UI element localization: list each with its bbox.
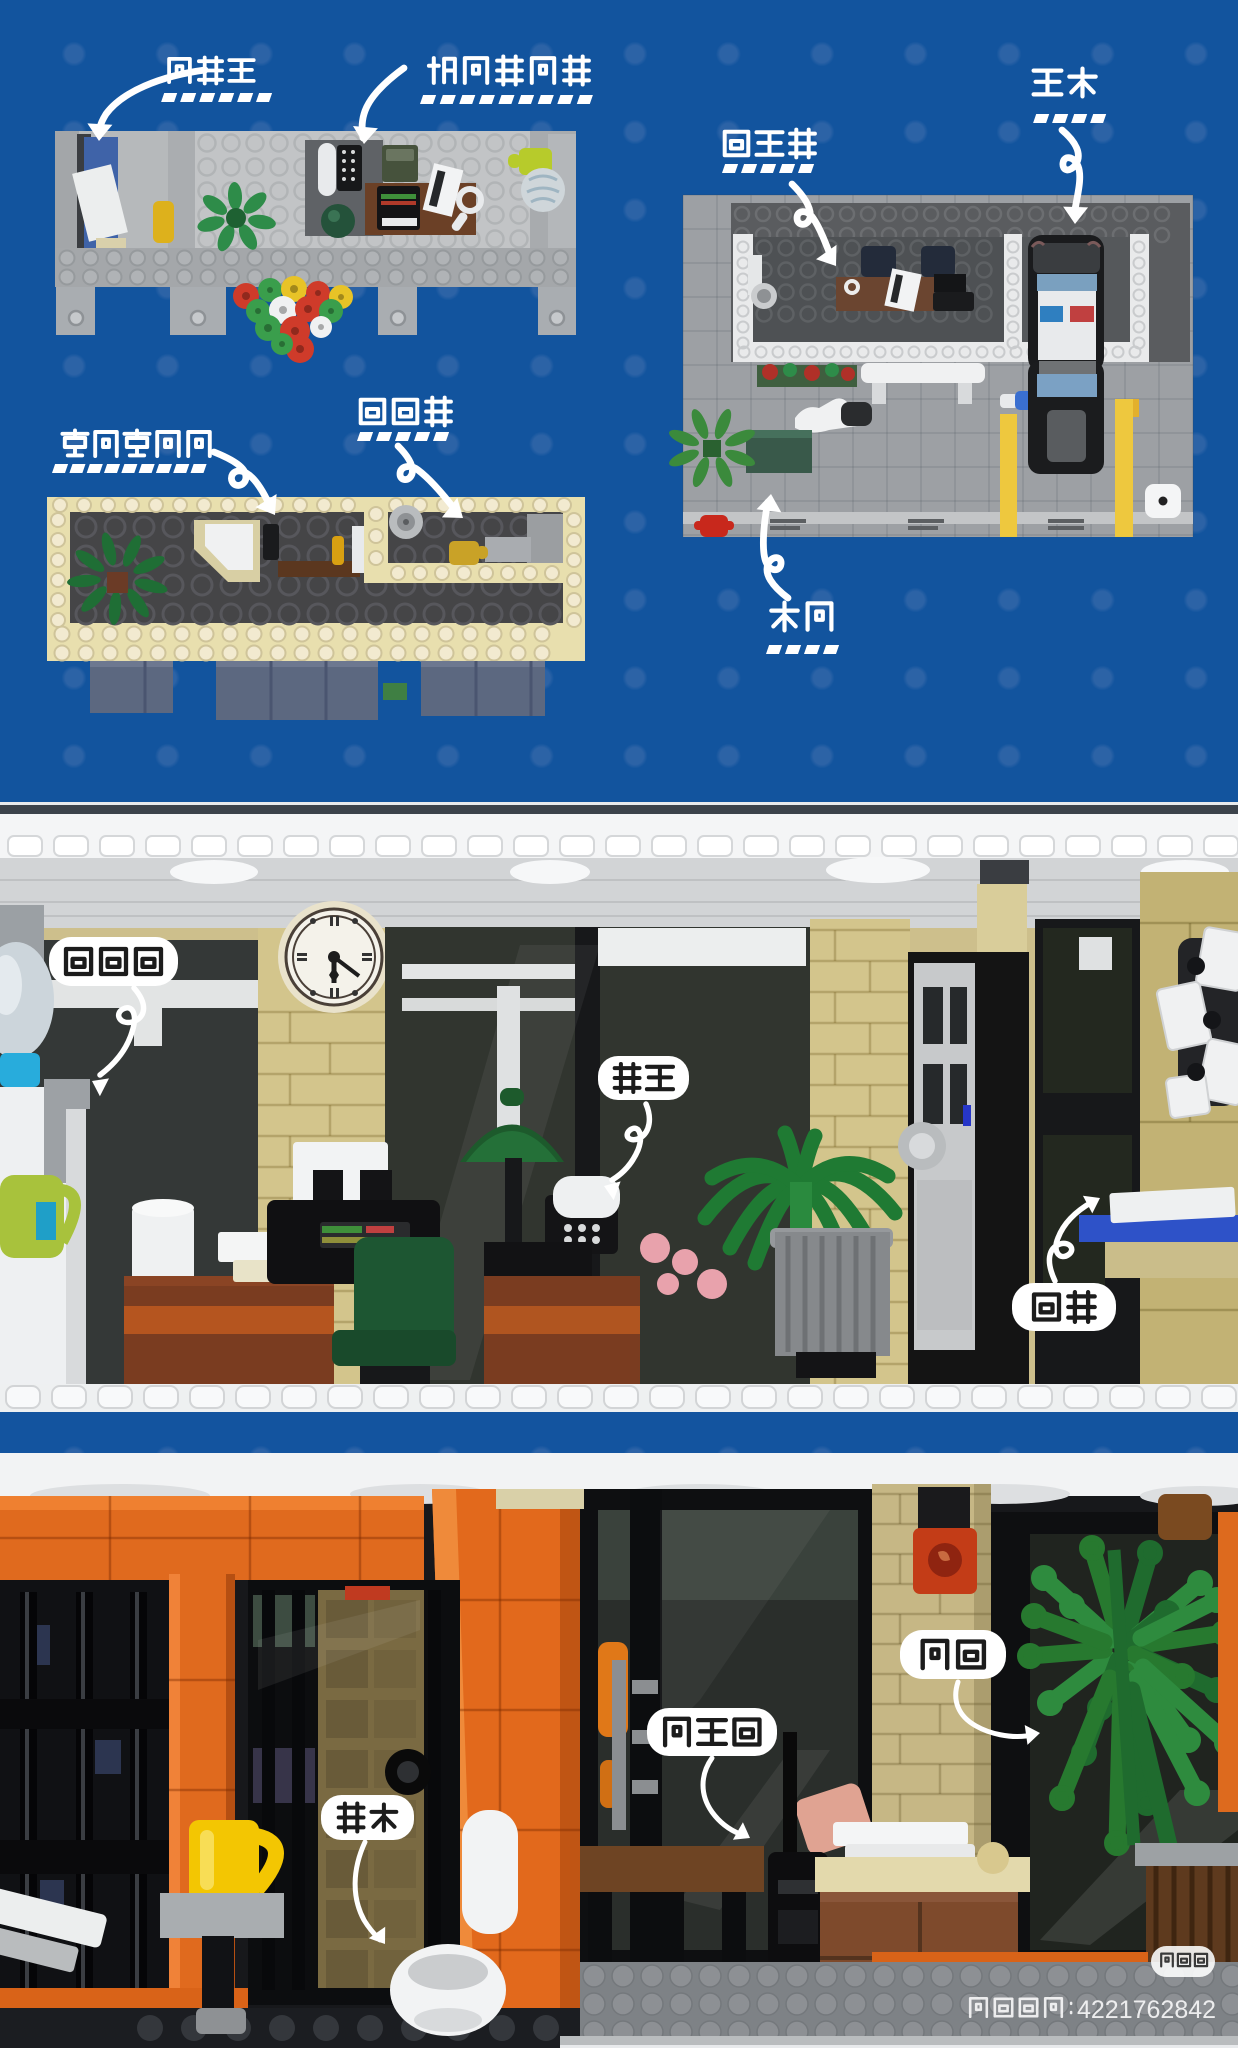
- svg-text:4221762842: 4221762842: [1077, 1996, 1216, 2024]
